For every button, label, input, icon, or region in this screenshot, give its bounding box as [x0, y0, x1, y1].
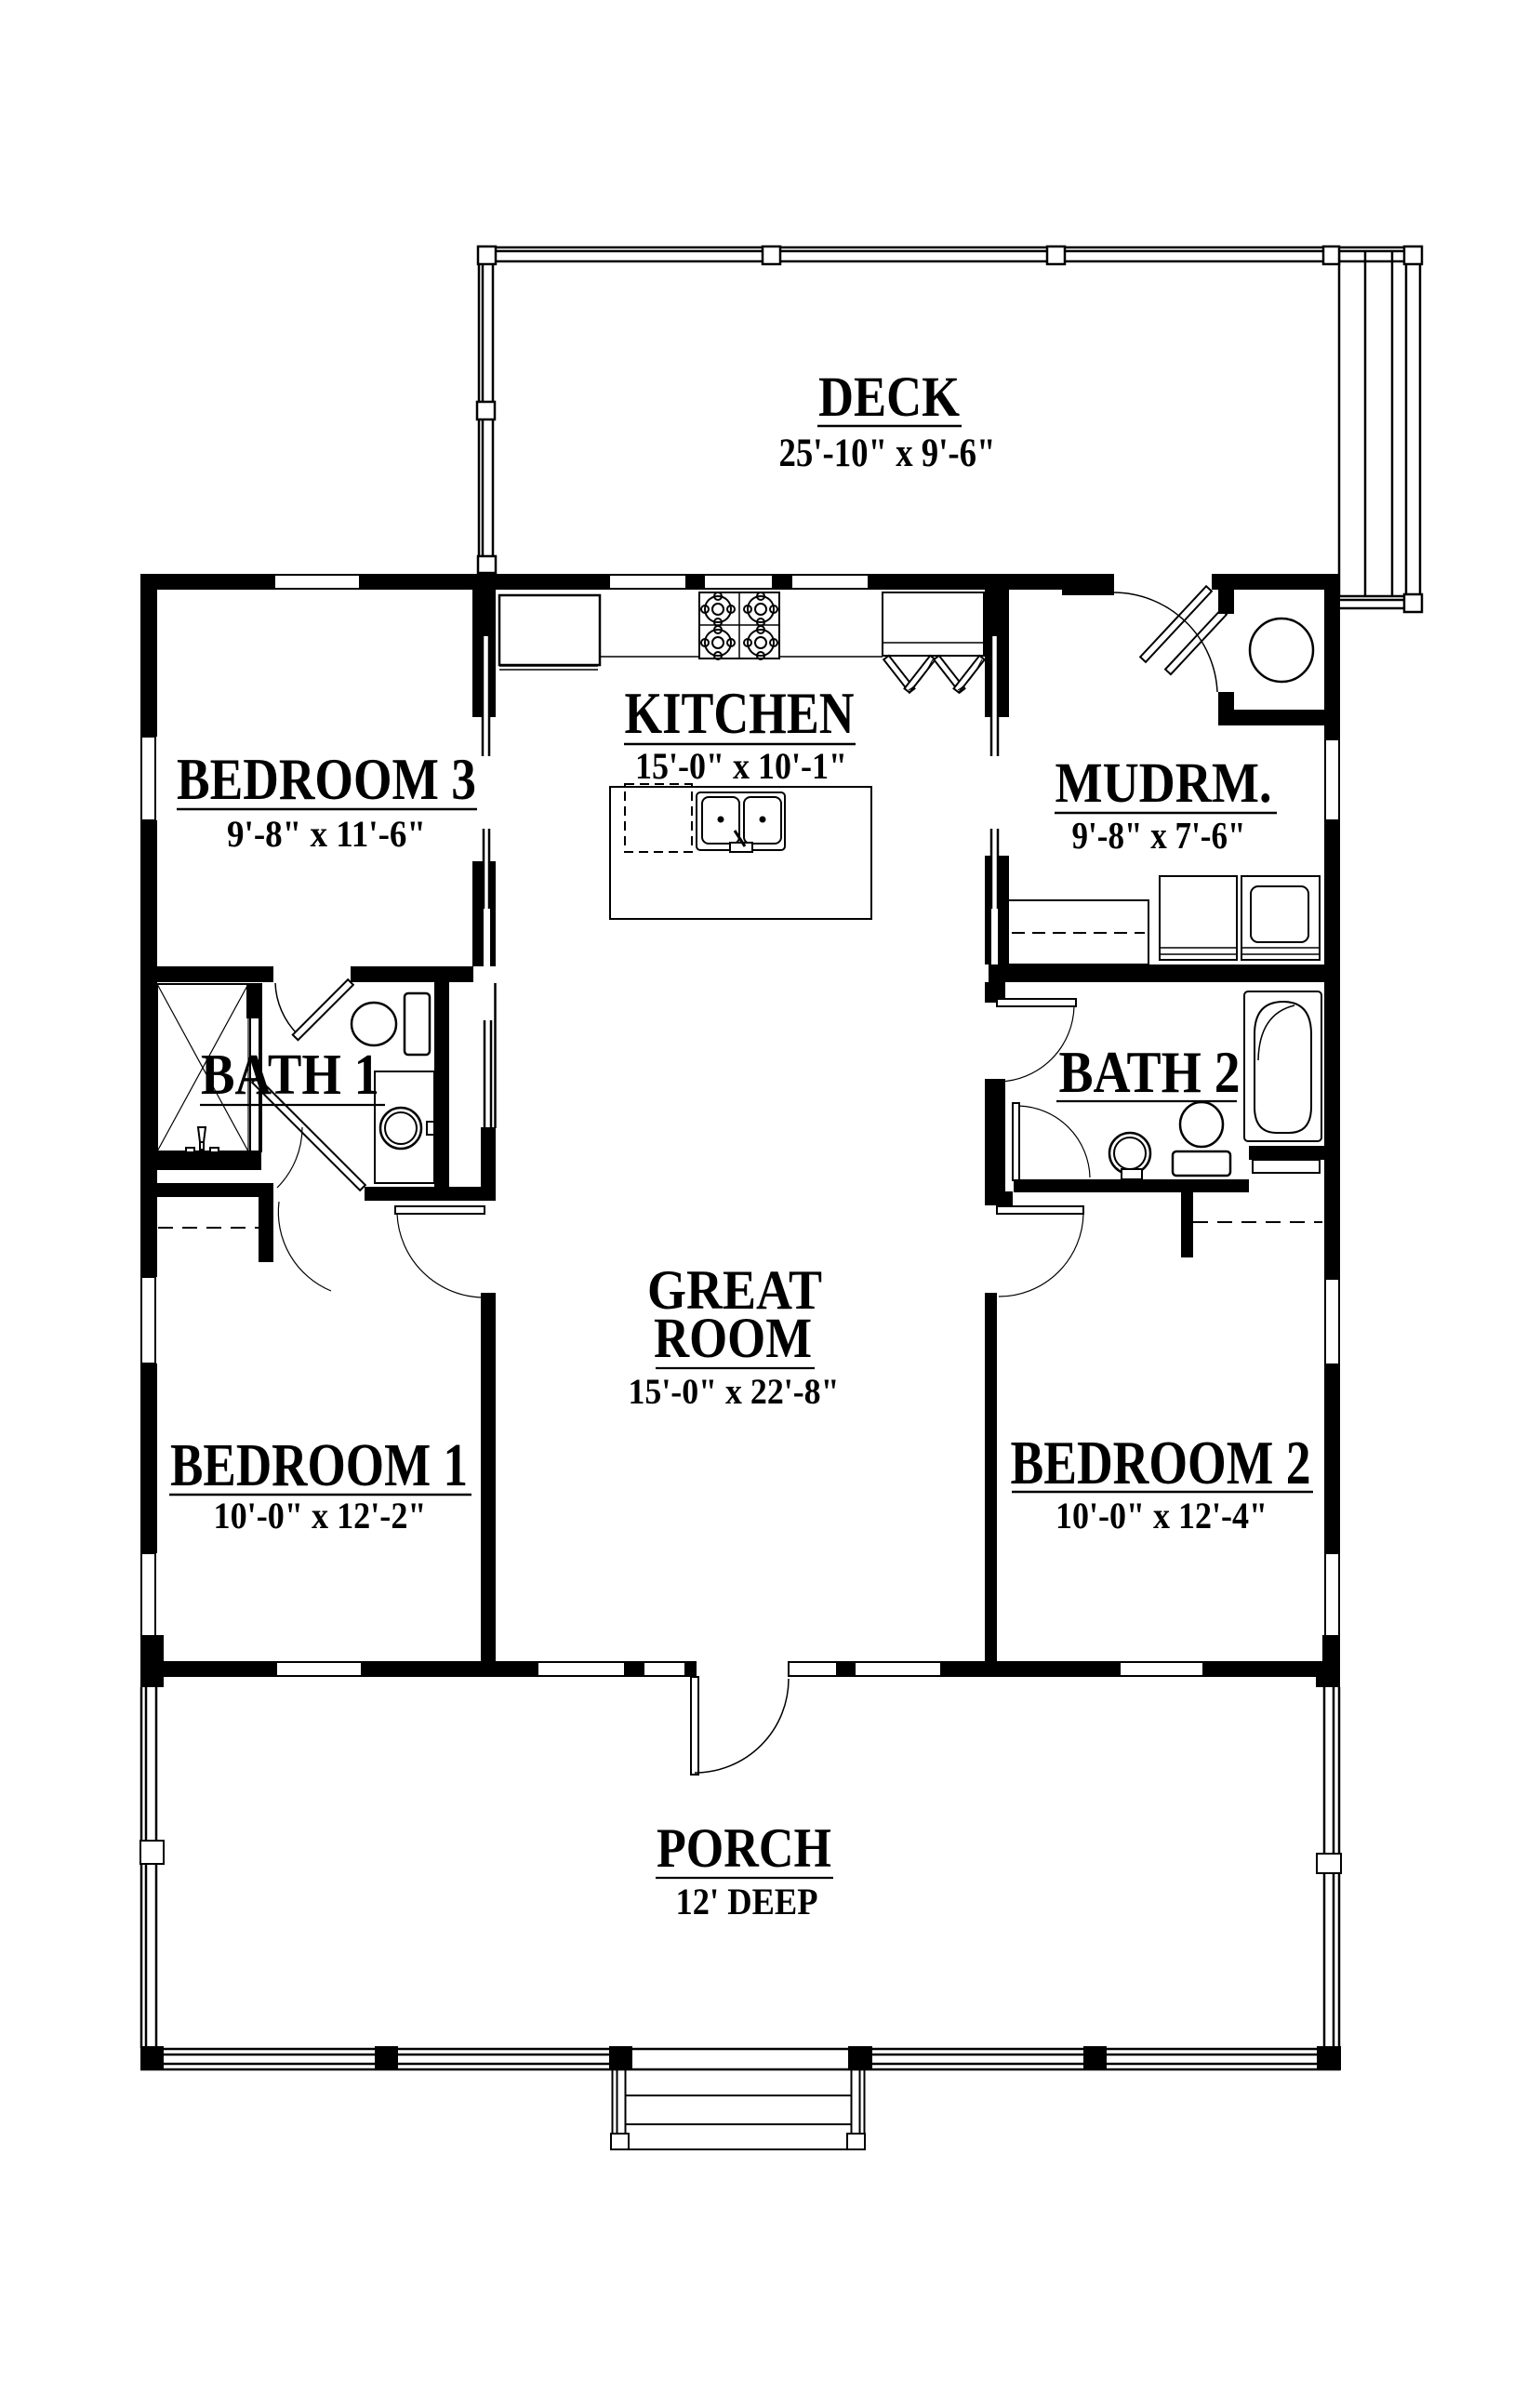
svg-text:KITCHEN: KITCHEN: [625, 681, 855, 746]
svg-text:12' DEEP: 12' DEEP: [676, 1881, 818, 1922]
svg-text:15'-0" x 10'-1": 15'-0" x 10'-1": [635, 745, 847, 787]
svg-text:BEDROOM 2: BEDROOM 2: [1011, 1429, 1311, 1497]
svg-text:BEDROOM 3: BEDROOM 3: [177, 746, 476, 812]
svg-text:9'-8" x 11'-6": 9'-8" x 11'-6": [227, 813, 426, 855]
svg-text:25'-10" x 9'-6": 25'-10" x 9'-6": [779, 432, 996, 475]
svg-text:PORCH: PORCH: [657, 1817, 831, 1879]
svg-text:BATH 2: BATH 2: [1059, 1039, 1241, 1105]
svg-text:15'-0" x 22'-8": 15'-0" x 22'-8": [629, 1372, 840, 1412]
svg-text:10'-0" x 12'-4": 10'-0" x 12'-4": [1055, 1495, 1268, 1536]
svg-text:BEDROOM 1: BEDROOM 1: [170, 1431, 468, 1499]
svg-text:BATH 1: BATH 1: [201, 1044, 379, 1107]
svg-text:ROOM: ROOM: [654, 1308, 812, 1370]
svg-text:MUDRM.: MUDRM.: [1055, 752, 1272, 815]
svg-text:9'-8" x 7'-6": 9'-8" x 7'-6": [1072, 814, 1246, 857]
svg-text:DECK: DECK: [818, 366, 960, 429]
svg-text:10'-0" x 12'-2": 10'-0" x 12'-2": [214, 1495, 427, 1536]
